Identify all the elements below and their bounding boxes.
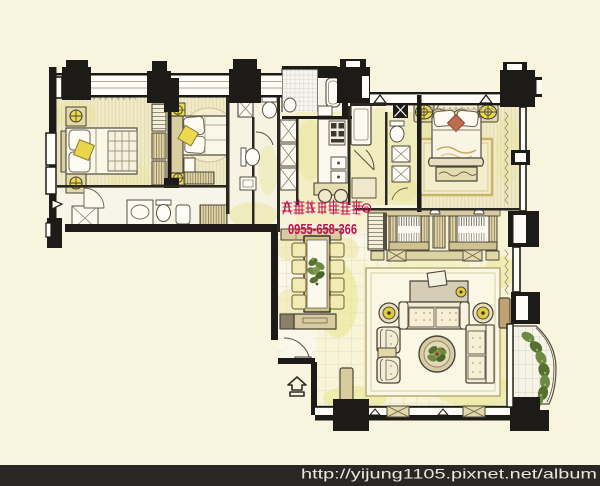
svg-text:0955-658-366: 0955-658-366 — [288, 221, 357, 238]
svg-text:http://yijung1105.pixnet.net/a: http://yijung1105.pixnet.net/album — [301, 465, 597, 481]
svg-text:R: R — [364, 206, 369, 213]
